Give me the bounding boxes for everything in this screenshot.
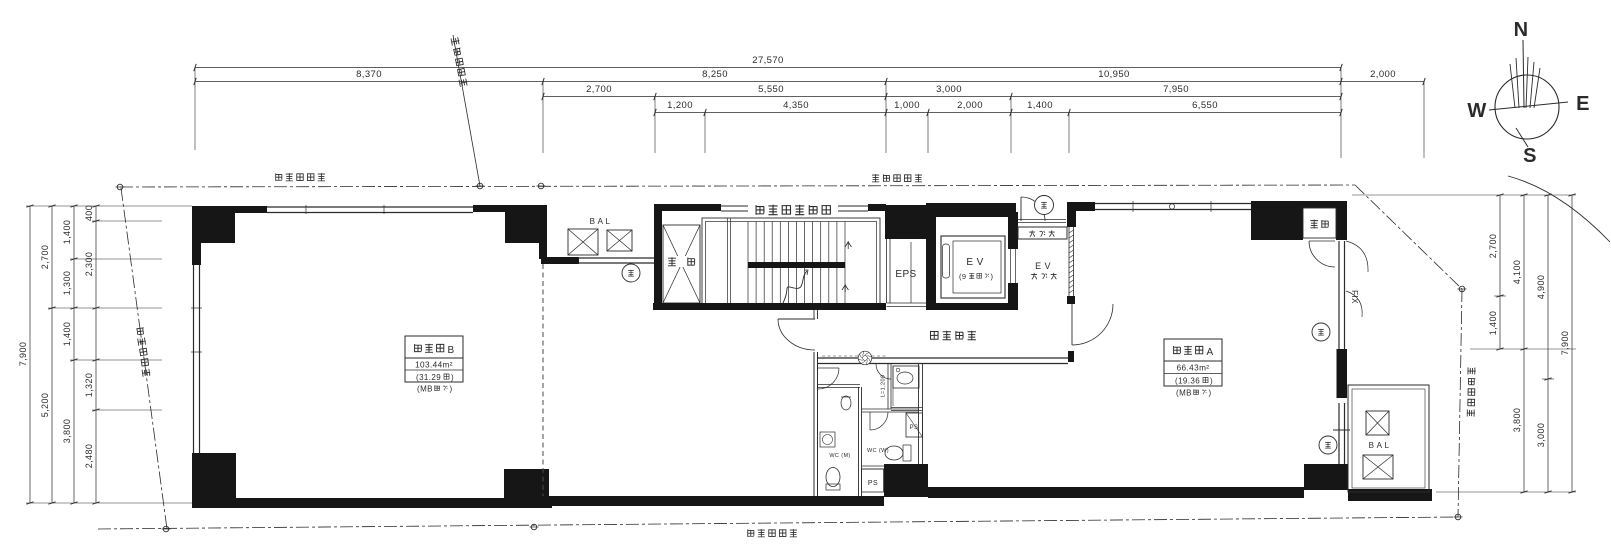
svg-text:(19.36: (19.36 [1175,377,1200,386]
svg-text:2,700: 2,700 [1488,234,1498,259]
svg-text:1,300: 1,300 [62,271,72,296]
svg-text:103.44m²: 103.44m² [415,361,453,370]
svg-text:5,200: 5,200 [40,393,50,418]
svg-text:8,370: 8,370 [356,69,382,80]
svg-text:): ) [1210,377,1213,386]
svg-text:N: N [1514,19,1529,41]
svg-text:(9: (9 [959,272,966,281]
svg-text:2,000: 2,000 [1370,69,1396,80]
svg-text:7,900: 7,900 [18,342,28,367]
svg-text:1,320: 1,320 [84,373,94,398]
svg-text:2,000: 2,000 [957,100,983,111]
svg-text:400: 400 [84,205,94,221]
svg-text:S: S [1523,145,1537,167]
svg-text:2,700: 2,700 [586,84,612,95]
svg-text:27,570: 27,570 [752,55,783,66]
svg-text:): ) [450,385,453,394]
svg-text:B A L: B A L [590,217,611,226]
svg-text:PS: PS [910,425,919,431]
svg-text:): ) [991,272,994,281]
svg-text:2,480: 2,480 [84,444,94,469]
svg-text:B: B [447,345,454,356]
svg-text:3,000: 3,000 [1536,423,1546,448]
svg-text:3,000: 3,000 [936,84,962,95]
svg-text:10,950: 10,950 [1098,69,1129,80]
svg-text:1,400: 1,400 [1027,100,1053,111]
svg-text:2,700: 2,700 [40,245,50,270]
svg-text:1,400: 1,400 [1488,311,1498,336]
svg-text:A: A [1206,347,1213,358]
svg-text:7,900: 7,900 [1560,331,1570,356]
svg-text:6,550: 6,550 [1192,100,1218,111]
svg-text:1,200: 1,200 [667,100,693,111]
svg-text:(MB: (MB [1176,389,1192,398]
svg-text:E V: E V [966,257,983,268]
svg-text:FIX: FIX [1350,290,1359,304]
svg-text:7,950: 7,950 [1163,84,1189,95]
svg-text:66.43m²: 66.43m² [1177,364,1210,373]
svg-text:3,800: 3,800 [1512,408,1522,433]
svg-text:1,400: 1,400 [62,220,72,245]
svg-text:W: W [1467,100,1486,122]
svg-text:4,350: 4,350 [783,100,809,111]
svg-text:4,100: 4,100 [1512,260,1522,285]
svg-text:EPS: EPS [895,269,916,280]
svg-text:PS: PS [868,480,878,487]
svg-text:3,800: 3,800 [62,419,72,444]
svg-text:2,300: 2,300 [84,252,94,277]
svg-text:): ) [451,373,454,382]
svg-text:B A L: B A L [1369,441,1390,450]
svg-text:E: E [1576,93,1590,115]
svg-text:(31.29: (31.29 [416,373,441,382]
svg-text:(MB: (MB [417,385,433,394]
svg-text:WC (W): WC (W) [867,448,889,454]
svg-text:1,000: 1,000 [894,100,920,111]
svg-text:E V: E V [1035,261,1051,271]
svg-text:4,900: 4,900 [1536,275,1546,300]
svg-text:5,550: 5,550 [758,84,784,95]
svg-text:WC (M): WC (M) [829,453,850,459]
svg-text:): ) [1209,389,1212,398]
svg-text:1,400: 1,400 [62,322,72,347]
svg-text:8,250: 8,250 [702,69,728,80]
svg-text:L=1,200: L=1,200 [881,375,887,398]
